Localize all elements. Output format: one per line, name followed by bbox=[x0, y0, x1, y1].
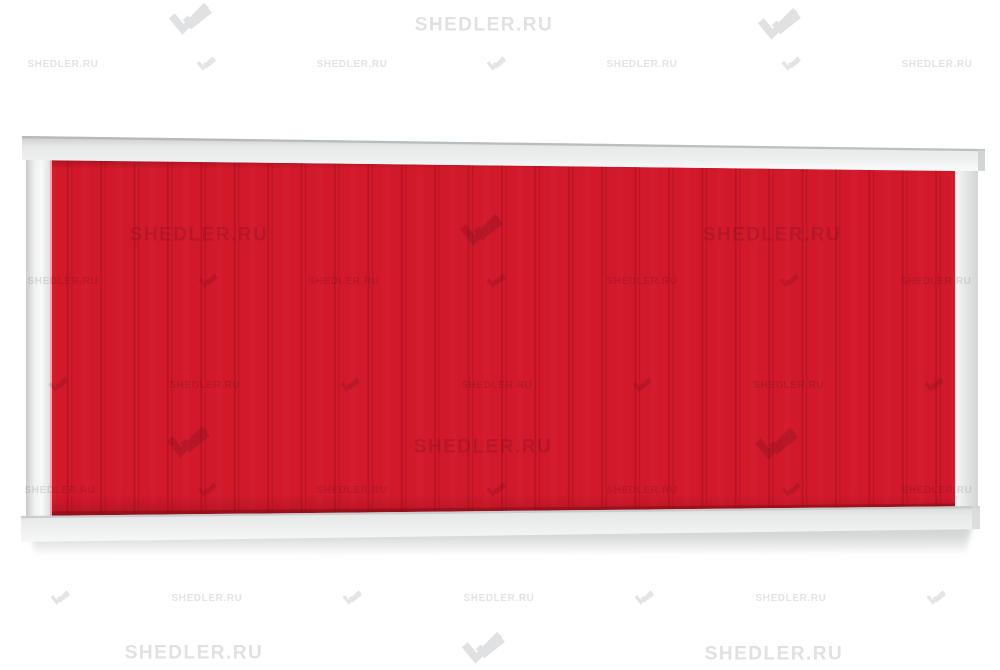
product-image: SHEDLER.RU SHEDLER.RU SHEDLER.RU SHEDLER… bbox=[0, 0, 1000, 670]
left-post bbox=[26, 158, 50, 520]
fence-panel-illustration bbox=[0, 0, 1000, 670]
bottom-rail-end-cap bbox=[972, 506, 980, 529]
profiled-sheet bbox=[50, 160, 955, 516]
sheet-left-highlight bbox=[50, 160, 52, 516]
top-rail-end-cap bbox=[978, 150, 985, 171]
right-post bbox=[955, 170, 978, 508]
